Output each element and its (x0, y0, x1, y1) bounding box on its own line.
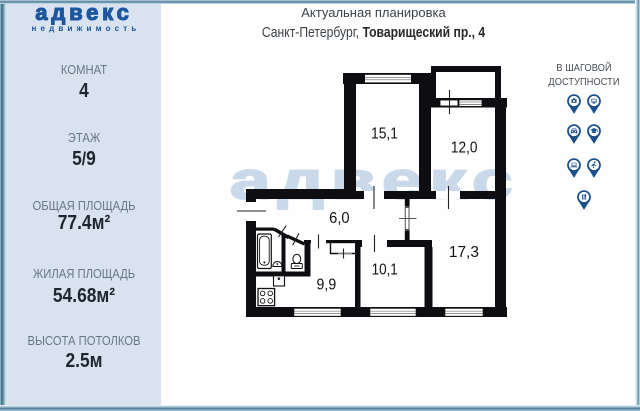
svg-text:15,1: 15,1 (371, 125, 398, 142)
svg-text:6,0: 6,0 (329, 210, 350, 227)
svg-text:9,9: 9,9 (317, 277, 337, 294)
svg-text:10,1: 10,1 (372, 262, 398, 279)
svg-text:12,0: 12,0 (451, 140, 478, 157)
svg-text:17,3: 17,3 (449, 244, 479, 261)
